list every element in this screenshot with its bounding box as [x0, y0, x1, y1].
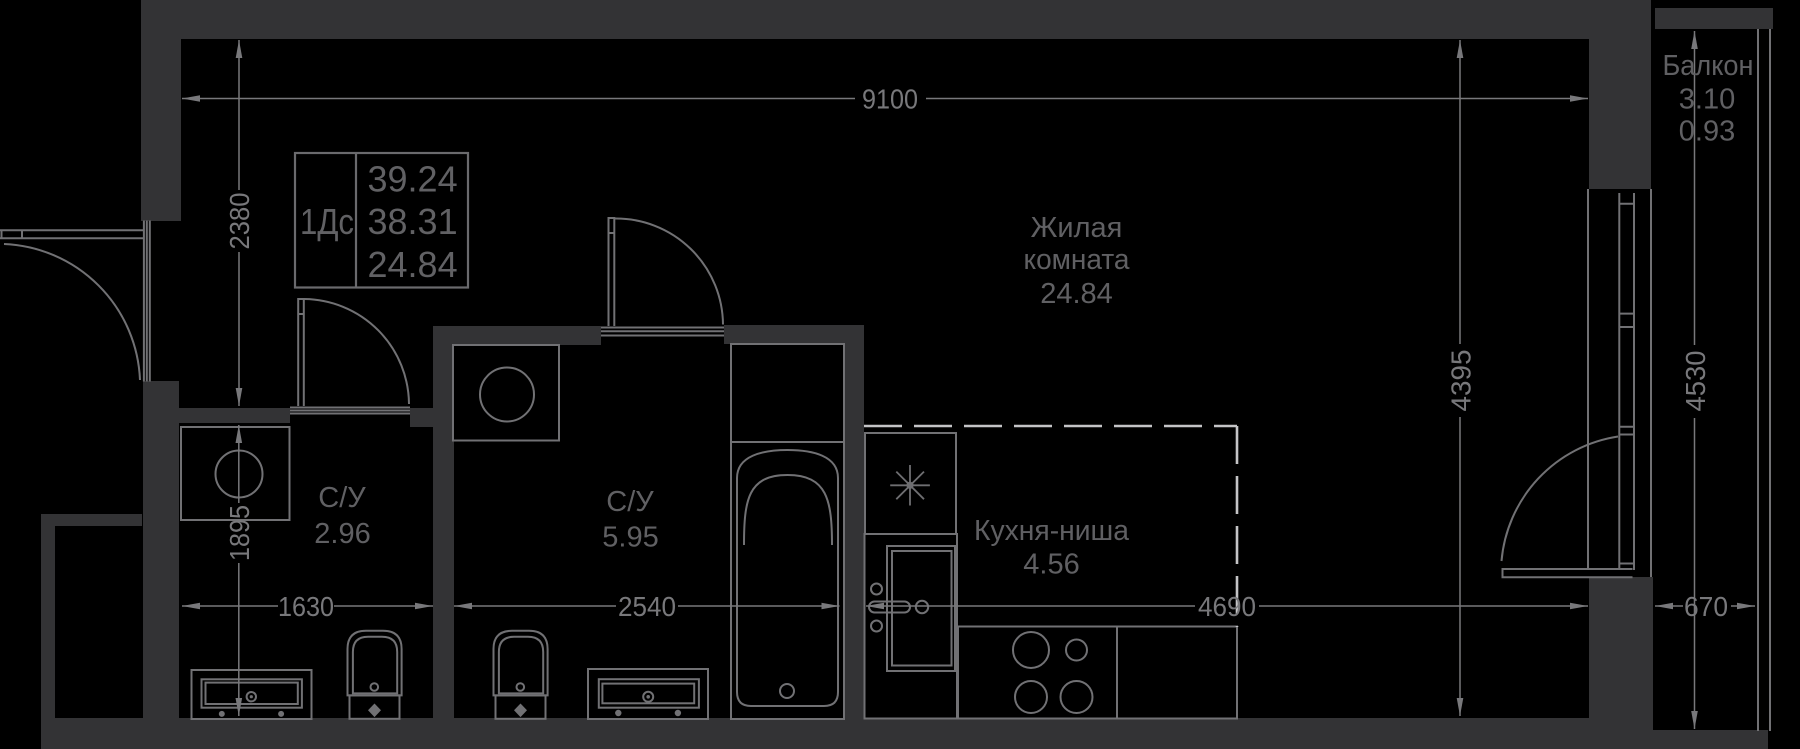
svg-text:С/У: С/У: [318, 482, 366, 514]
svg-text:4690: 4690: [1198, 591, 1256, 622]
svg-text:670: 670: [1684, 591, 1728, 622]
svg-text:38.31: 38.31: [368, 201, 458, 242]
svg-text:4530: 4530: [1680, 351, 1711, 412]
svg-text:Жилая: Жилая: [1031, 212, 1123, 244]
svg-text:1895: 1895: [224, 505, 255, 561]
svg-text:24.84: 24.84: [368, 244, 458, 285]
svg-text:1630: 1630: [278, 591, 334, 622]
svg-text:4395: 4395: [1446, 350, 1477, 412]
svg-text:1Дс: 1Дс: [300, 201, 354, 242]
svg-text:39.24: 39.24: [368, 159, 458, 200]
svg-text:9100: 9100: [862, 84, 918, 115]
svg-text:2540: 2540: [618, 591, 676, 622]
svg-text:2380: 2380: [224, 193, 255, 250]
svg-text:4.56: 4.56: [1023, 549, 1079, 581]
svg-text:Балкон: Балкон: [1663, 50, 1754, 82]
svg-text:2.96: 2.96: [314, 518, 370, 550]
svg-text:3.10: 3.10: [1679, 84, 1735, 116]
svg-text:0.93: 0.93: [1679, 116, 1735, 148]
svg-text:С/У: С/У: [606, 486, 654, 518]
svg-text:24.84: 24.84: [1040, 278, 1113, 310]
svg-text:5.95: 5.95: [602, 522, 658, 554]
svg-text:комната: комната: [1024, 244, 1131, 276]
svg-text:Кухня-ниша: Кухня-ниша: [974, 515, 1130, 547]
